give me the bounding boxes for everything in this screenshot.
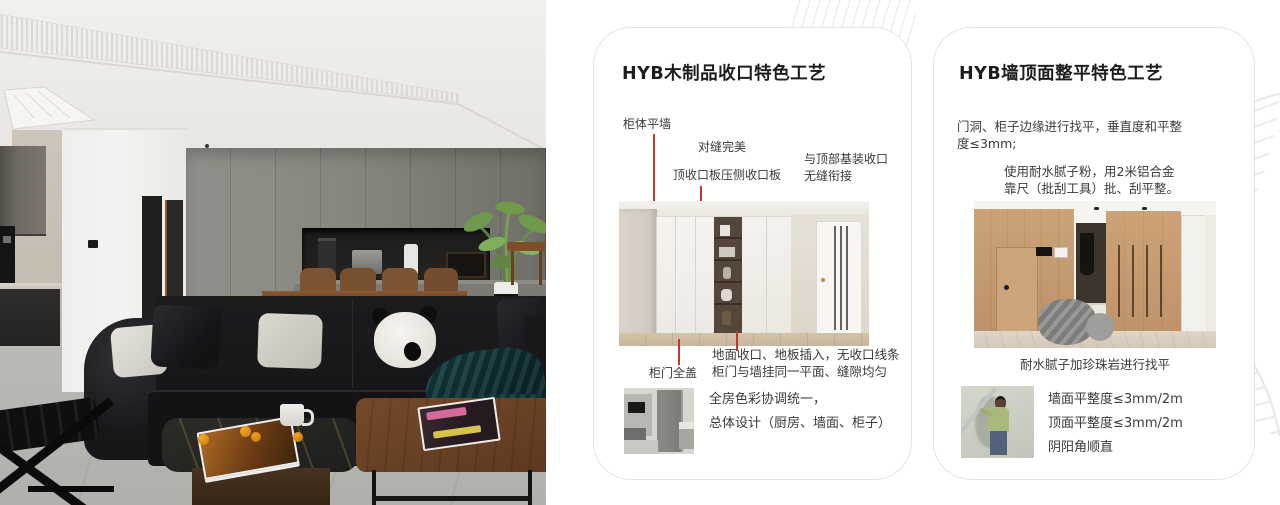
scene-left-wall bbox=[619, 209, 657, 335]
floor-closing-note-line1: 地面收口、地板插入，无收口线条 bbox=[712, 347, 900, 362]
mug-handle bbox=[302, 409, 314, 426]
summary-line1: 全房色彩协调统一， bbox=[709, 392, 826, 407]
wardrobe-groove bbox=[1146, 245, 1148, 317]
thumb-counter bbox=[679, 422, 694, 429]
kitchen-lower-cabinet bbox=[0, 289, 60, 346]
wardrobe-groove bbox=[1132, 245, 1134, 317]
coffee-table-wood-stretcher bbox=[372, 496, 532, 501]
shelf-board bbox=[714, 303, 742, 305]
para1-line2: 度≤3mm; bbox=[957, 136, 1017, 151]
worker-shirt bbox=[988, 407, 1009, 432]
thumb-sofa bbox=[624, 428, 646, 440]
scene-white-door bbox=[816, 221, 862, 335]
hanging-clothes bbox=[1080, 233, 1094, 275]
bar-stool-leg bbox=[511, 251, 514, 285]
leader-line bbox=[678, 339, 680, 365]
scene-door-seam bbox=[695, 217, 696, 335]
para1-line1: 门洞、柜子边缘进行找平，垂直度和平整 bbox=[957, 119, 1182, 134]
coffee-machine-screen bbox=[3, 236, 11, 243]
wardrobe-scene-image bbox=[619, 201, 869, 346]
wardrobe-groove bbox=[1118, 245, 1120, 317]
magazine-cover-art bbox=[426, 407, 467, 420]
ceiling-spot bbox=[1094, 207, 1099, 210]
callout-ceiling-joint-line1: 与顶部基装收口 bbox=[804, 152, 888, 166]
bar-stool bbox=[507, 242, 545, 251]
scene-wardrobe-doors-left bbox=[656, 217, 715, 335]
scene-open-closet bbox=[1076, 223, 1106, 303]
shelf-item bbox=[723, 267, 731, 279]
callout-ceiling-joint-line2: 无缝衔接 bbox=[804, 169, 852, 183]
orange-fruit bbox=[293, 432, 303, 442]
pouf bbox=[1086, 313, 1114, 341]
scene-right-wall bbox=[1205, 215, 1216, 335]
dining-chair-back bbox=[382, 268, 418, 292]
door-stripe bbox=[846, 226, 848, 330]
orange-fruit bbox=[198, 434, 209, 445]
living-room-photo bbox=[0, 0, 546, 505]
shelf-item bbox=[722, 311, 731, 325]
card-wall-leveling: HYB墙顶面整平特色工艺 门洞、柜子边缘进行找平，垂直度和平整 度≤3mm; 使… bbox=[933, 27, 1255, 480]
kitchen-thumbnail-image bbox=[624, 388, 694, 454]
scene-switch-panel bbox=[1036, 247, 1052, 256]
leveling-paragraph-1: 门洞、柜子边缘进行找平，垂直度和平整 度≤3mm; bbox=[957, 118, 1182, 152]
shelf-item bbox=[719, 247, 735, 257]
sling-chair-stretcher bbox=[28, 486, 114, 492]
sofa-pillow-black bbox=[150, 304, 221, 369]
shelf-item bbox=[721, 289, 732, 301]
spec-corners: 阴阳角顺直 bbox=[1048, 440, 1113, 455]
scene-switch-panel bbox=[1054, 247, 1068, 258]
spec-ceiling-flatness: 顶面平整度≤3mm/2m bbox=[1048, 416, 1183, 431]
panda-plush bbox=[374, 312, 436, 368]
wood-room-scene-image bbox=[974, 201, 1216, 348]
light-switch bbox=[88, 240, 98, 248]
floor-closing-note: 地面收口、地板插入，无收口线条 柜门与墙挂同一平面、缝隙均匀 bbox=[712, 346, 900, 380]
para2-line2: 靠尺（批刮工具）批、刮平整。 bbox=[1004, 181, 1179, 196]
kitchen-upper-cabinet bbox=[0, 146, 46, 236]
shelf-board bbox=[714, 237, 742, 239]
bar-stool-leg bbox=[539, 251, 542, 285]
door-stripe bbox=[840, 226, 842, 330]
dining-chair-back bbox=[340, 268, 376, 292]
callout-ceiling-joint: 与顶部基装收口 无缝衔接 bbox=[804, 151, 888, 185]
summary-line2: 总体设计（厨房、墙面、柜子） bbox=[709, 416, 891, 431]
callout-top-closing-board: 顶收口板压侧收口板 bbox=[673, 167, 781, 184]
card-wood-title: HYB木制品收口特色工艺 bbox=[622, 60, 826, 85]
scene-floor bbox=[619, 333, 869, 346]
shelf-board bbox=[714, 281, 742, 283]
scene-white-door-right bbox=[1181, 215, 1207, 335]
page: HYB木制品收口特色工艺 柜体平墙 对缝完美 顶收口板压侧收口板 与顶部基装收口… bbox=[0, 0, 1280, 505]
para2-line1: 使用耐水腻子粉，用2米铝合金 bbox=[1004, 164, 1174, 179]
thumb-counter-base bbox=[679, 429, 694, 449]
floor-closing-note-line2: 柜门与墙挂同一平面、缝隙均匀 bbox=[712, 364, 887, 379]
flatness-specs: 墙面平整度≤3mm/2m 顶面平整度≤3mm/2m 阴阳角顺直 bbox=[1048, 388, 1183, 460]
door-handle bbox=[821, 278, 825, 282]
callout-perfect-seam: 对缝完美 bbox=[698, 139, 746, 156]
scene-door-handle bbox=[1004, 285, 1009, 290]
shelf-board bbox=[714, 259, 742, 261]
callout-full-cover-door: 柜门全盖 bbox=[649, 365, 697, 382]
scene-door-seam bbox=[766, 217, 767, 335]
ceiling-spot bbox=[1142, 207, 1147, 210]
wardrobe-groove bbox=[1160, 245, 1162, 317]
magazine-cover-art bbox=[433, 425, 482, 439]
orange-fruit bbox=[240, 426, 251, 437]
thumb-floor bbox=[624, 440, 658, 454]
scene-door-seam bbox=[675, 217, 676, 335]
spec-wall-flatness: 墙面平整度≤3mm/2m bbox=[1048, 392, 1183, 407]
worker-jeans bbox=[990, 431, 1007, 455]
color-unity-summary: 全房色彩协调统一， 总体设计（厨房、墙面、柜子） bbox=[709, 388, 891, 436]
orange-fruit bbox=[251, 432, 261, 442]
thumb-tv bbox=[628, 402, 645, 413]
scene-open-shelf bbox=[714, 217, 742, 335]
leveling-paragraph-2: 使用耐水腻子粉，用2米铝合金 靠尺（批刮工具）批、刮平整。 bbox=[1004, 163, 1179, 197]
mug bbox=[280, 404, 304, 426]
callout-cabinet-flush-wall: 柜体平墙 bbox=[623, 116, 671, 133]
scene-wardrobe-right bbox=[1106, 211, 1181, 335]
card-wood-craft: HYB木制品收口特色工艺 柜体平墙 对缝完美 顶收口板压侧收口板 与顶部基装收口… bbox=[593, 27, 912, 480]
dining-chair-back bbox=[424, 268, 458, 292]
panda-body bbox=[374, 312, 436, 368]
sofa-pillow-beige bbox=[257, 313, 323, 369]
scene-wood-door bbox=[996, 247, 1038, 337]
door-stripe bbox=[834, 226, 836, 330]
shelf-item bbox=[720, 225, 730, 236]
card-wall-title: HYB墙顶面整平特色工艺 bbox=[959, 60, 1163, 85]
dining-chair-back bbox=[300, 268, 336, 292]
sofa-seam bbox=[352, 300, 353, 388]
worker-thumbnail-image bbox=[961, 386, 1034, 458]
scene-caption: 耐水腻子加珍珠岩进行找平 bbox=[974, 356, 1216, 373]
